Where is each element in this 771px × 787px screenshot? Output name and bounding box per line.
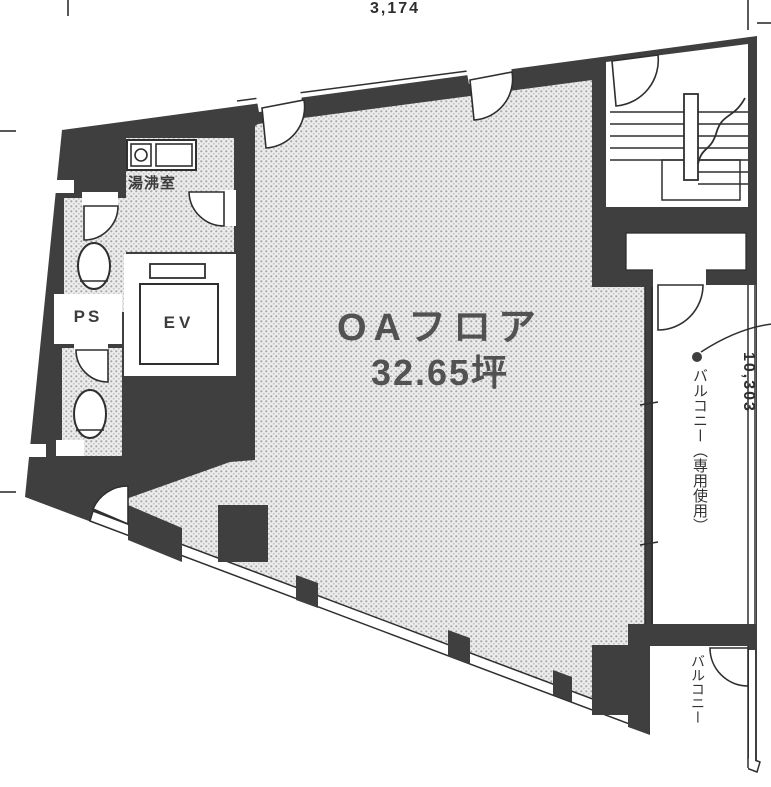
stairwell	[606, 44, 748, 207]
dimension-top: 3,174	[320, 0, 470, 18]
toilet-icon-lower	[74, 390, 106, 438]
elevator-door-icon	[150, 264, 205, 278]
toilet-icon-upper	[78, 243, 110, 289]
machine-room	[626, 233, 746, 270]
dimension-right: 10,303	[739, 352, 757, 413]
floor-pillar	[218, 505, 268, 562]
kitchenette-label: 湯沸室	[128, 172, 176, 193]
kitchenette-room	[126, 138, 236, 252]
sink-counter-icon	[127, 140, 196, 170]
toilet-room-lower	[62, 340, 122, 456]
stair-newel	[684, 94, 698, 180]
balcony-bottom-label: バルコニー	[688, 654, 708, 724]
area-label-line1: OAフロア	[280, 296, 600, 351]
floor-plan-page: 3,174 10,303 OAフロア 32.65坪 湯沸室 EV PS バルコニ…	[0, 0, 771, 787]
elevator-label: EV	[144, 313, 214, 333]
pipe-shaft-label: PS	[54, 307, 122, 327]
area-label-line2: 32.65坪	[280, 344, 600, 396]
balcony-private-label: バルコニー（専用使用）	[689, 368, 710, 533]
leader-dot	[692, 352, 702, 362]
